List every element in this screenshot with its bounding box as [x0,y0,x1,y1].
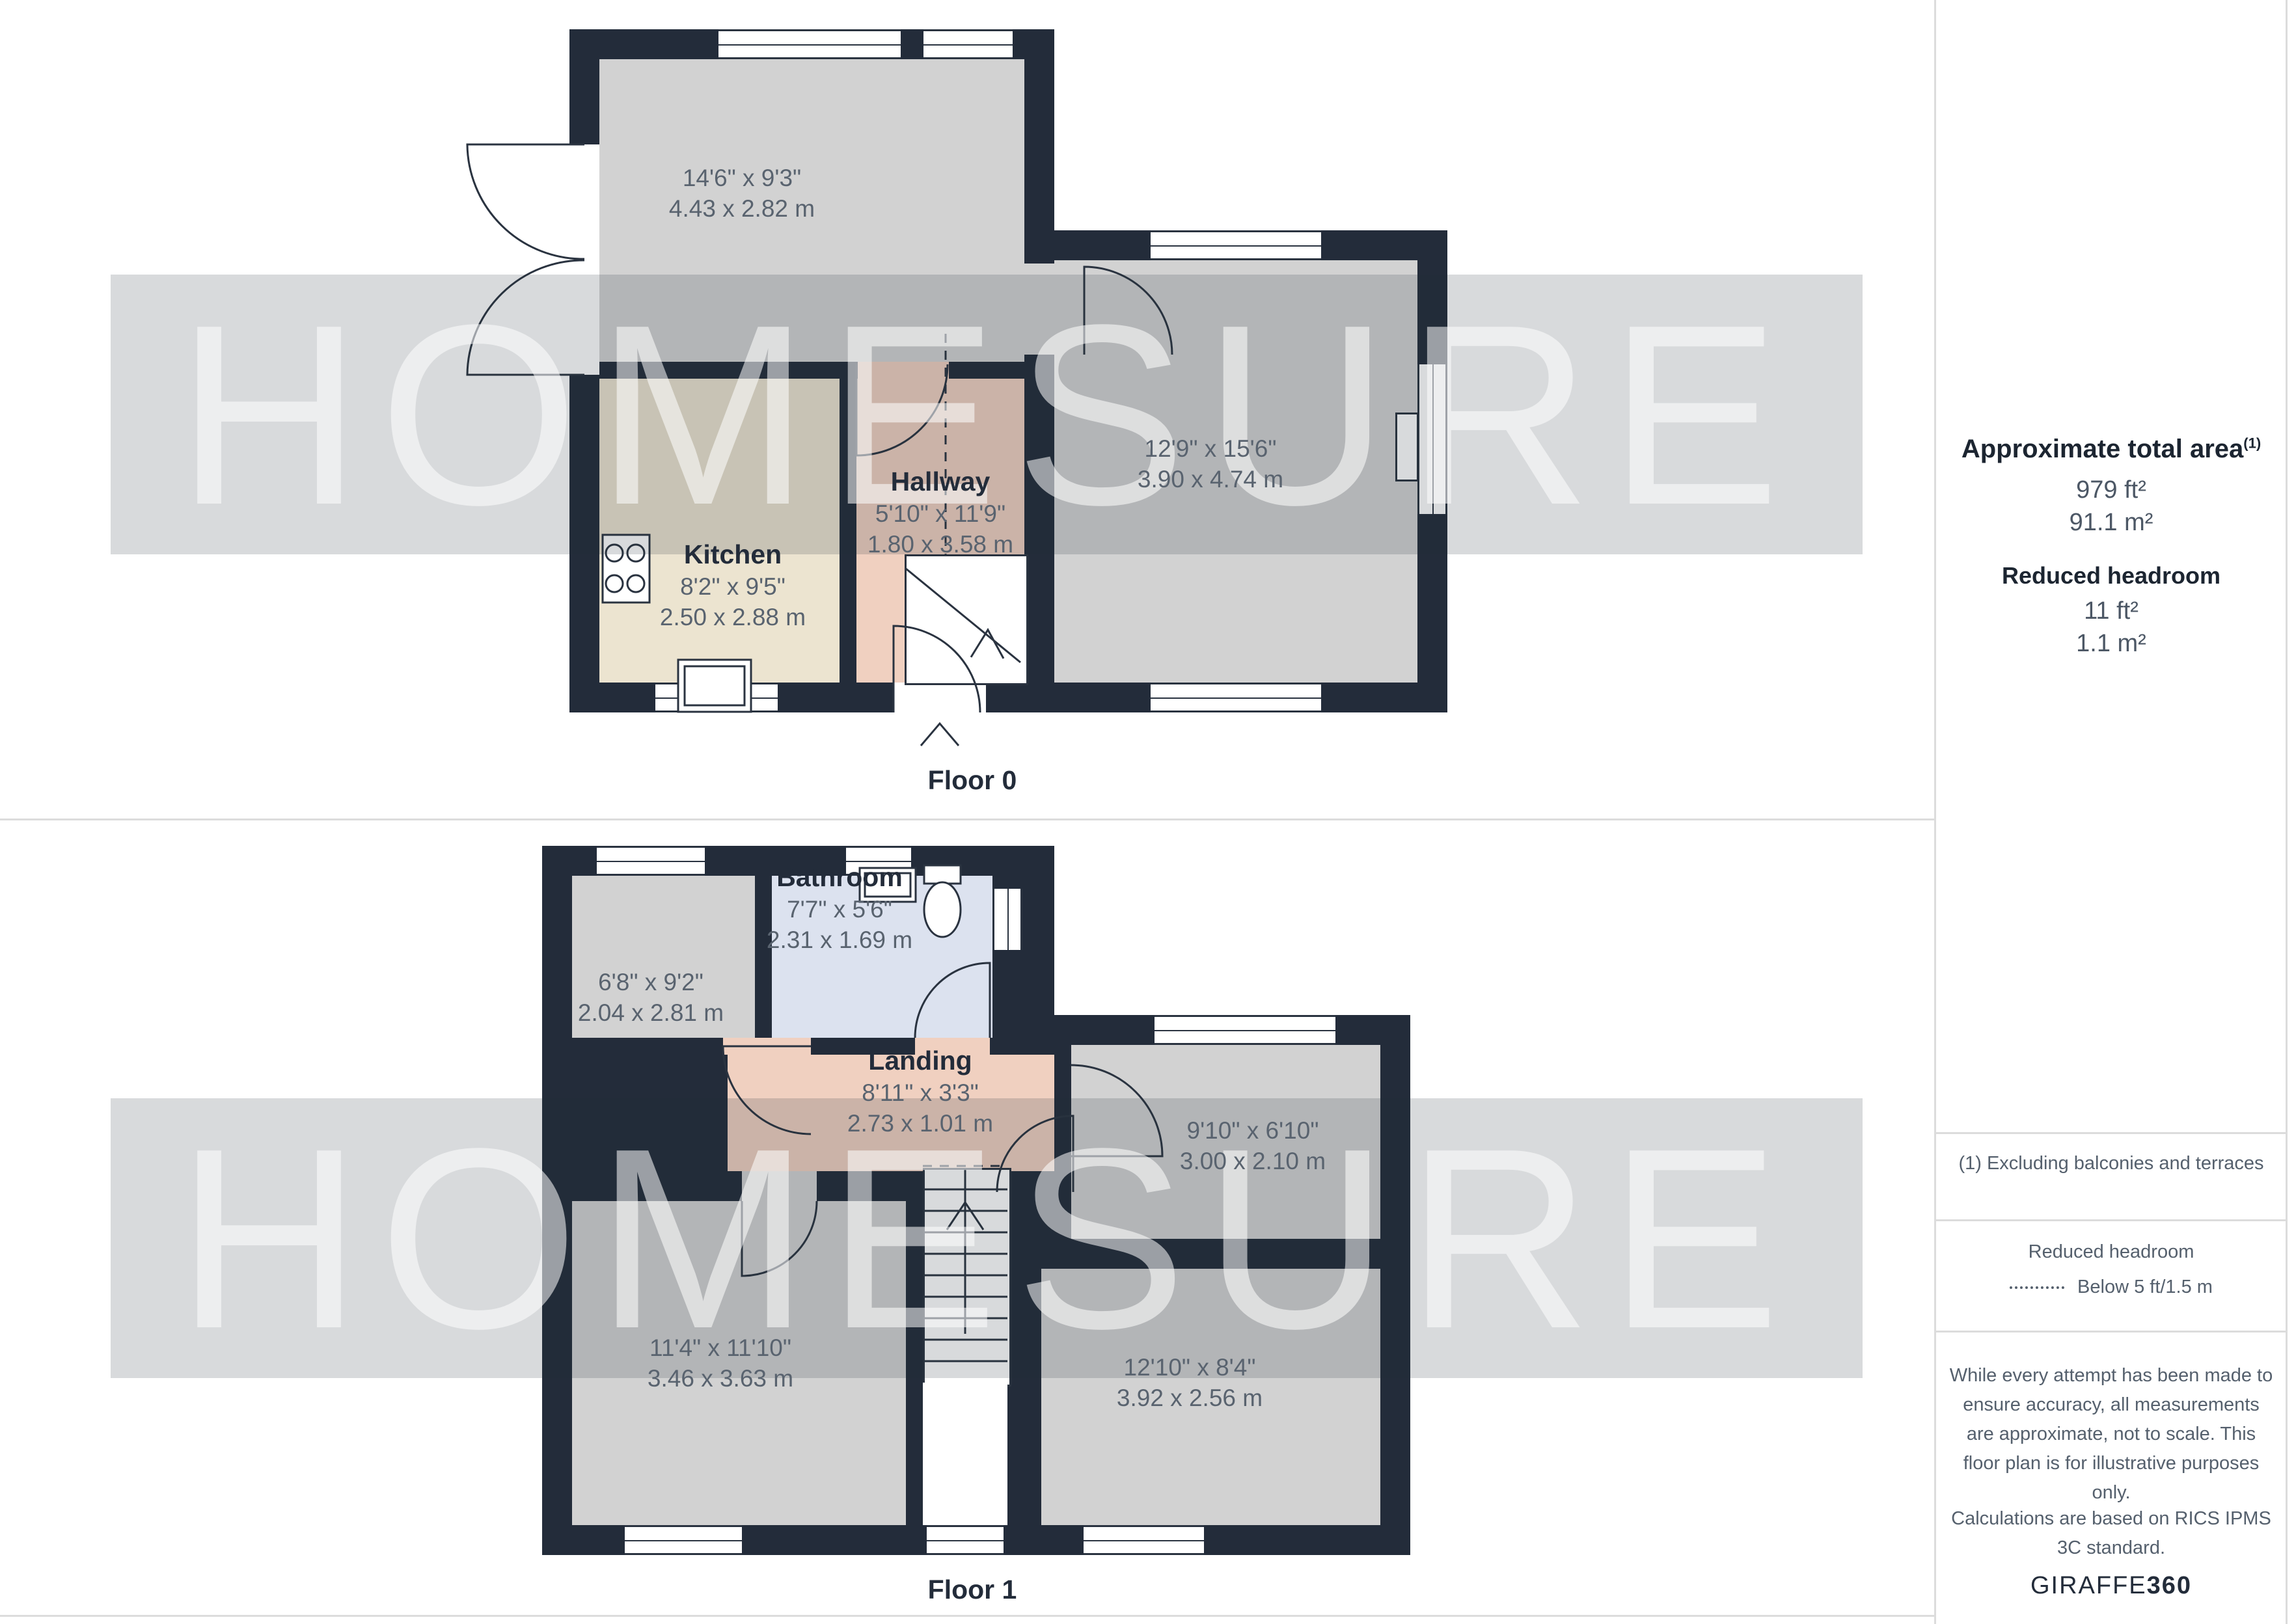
total-area-title: Approximate total area(1) [1935,435,2287,464]
bathroom-door-arc [915,963,990,1038]
bottom-divider-line [0,1615,1934,1617]
room-dim-metric: 1.80 x 3.58 m [868,529,1013,560]
watermark-text: HOMESURE [176,1110,1797,1367]
disclaimer-text-1: While every attempt has been made to ens… [1948,1361,2274,1508]
floor0-caption: Floor 0 [928,765,1017,796]
total-area-footnote-marker: (1) [2243,435,2261,452]
sidebar-divider-line [1934,0,1936,1624]
legend-title: Reduced headroom [1935,1241,2287,1263]
room-label-front-bedroom: 11'4" x 11'10" 3.46 x 3.63 m [648,1333,793,1394]
room-label-reception: 14'6" x 9'3" 4.43 x 2.82 m [669,163,815,224]
room-label-living: 12'9" x 15'6" 3.90 x 4.74 m [1138,433,1283,494]
floorplan-page: 14'6" x 9'3" 4.43 x 2.82 m Kitchen 8'2" … [0,0,2296,1624]
room-label-main-bedroom: 12'10" x 8'4" 3.92 x 2.56 m [1117,1352,1263,1413]
total-area-metric: 91.1 m² [1935,509,2287,537]
room-dim-imperial: 12'9" x 15'6" [1138,433,1283,464]
page-right-border [2286,0,2288,1624]
room-dim-metric: 2.31 x 1.69 m [767,925,912,955]
hob-burner-icon [606,575,623,592]
disclaimer-text-2: Calculations are based on RICS IPMS 3C s… [1948,1504,2274,1563]
room-dim-imperial: 7'7" x 5'6" [767,894,912,925]
hob-burner-icon [627,575,644,592]
room-name: Kitchen [660,537,806,571]
room-dim-imperial: 8'11" x 3'3" [847,1077,993,1108]
room-dim-metric: 4.43 x 2.82 m [669,193,815,224]
toilet-bowl-icon [924,882,961,937]
room-dim-metric: 3.90 x 4.74 m [1138,464,1283,494]
reduced-headroom-title: Reduced headroom [1935,562,2287,589]
dotted-line-icon [2010,1286,2064,1289]
floors-divider-line [0,819,1934,820]
french-door-upper-arc [467,144,584,259]
watermark-band-2: HOMESURE [111,1098,1863,1378]
room-label-kitchen: Kitchen 8'2" x 9'5" 2.50 x 2.88 m [660,537,806,632]
room-name: Landing [847,1044,993,1077]
sidebar-section-divider-1 [1935,1132,2288,1134]
room-dim-imperial: 12'10" x 8'4" [1117,1352,1263,1383]
room-label-hallway: Hallway 5'10" x 11'9" 1.80 x 3.58 m [868,465,1013,560]
sidebar-section-divider-3 [1935,1331,2288,1333]
room-dim-imperial: 14'6" x 9'3" [669,163,815,193]
room-label-small-bedroom: 6'8" x 9'2" 2.04 x 2.81 m [578,967,724,1028]
reduced-headroom-metric: 1.1 m² [1935,630,2287,658]
floor1-caption: Floor 1 [928,1575,1017,1605]
room-dim-imperial: 5'10" x 11'9" [868,498,1013,529]
reduced-headroom-imperial: 11 ft² [1935,597,2287,625]
legend-item-text: Below 5 ft/1.5 m [2077,1277,2213,1298]
room-dim-metric: 3.00 x 2.10 m [1180,1146,1326,1176]
brand-suffix: 360 [2147,1572,2192,1599]
room-dim-metric: 2.50 x 2.88 m [660,602,806,632]
room-label-landing: Landing 8'11" x 3'3" 2.73 x 1.01 m [847,1044,993,1139]
sink-unit-inner-icon [685,666,745,705]
room-dim-metric: 3.92 x 2.56 m [1117,1383,1263,1413]
brand-name: GIRAFFE [2030,1572,2147,1599]
room-dim-metric: 3.46 x 3.63 m [648,1363,793,1394]
room-dim-metric: 2.04 x 2.81 m [578,997,724,1028]
room-dim-imperial: 8'2" x 9'5" [660,571,806,602]
sidebar-section-divider-2 [1935,1219,2288,1221]
room-name: Hallway [868,465,1013,498]
stairs-diagonal [906,569,1020,662]
room-dim-imperial: 6'8" x 9'2" [578,967,724,997]
room-label-rear-bedroom: 9'10" x 6'10" 3.00 x 2.10 m [1180,1115,1326,1176]
room-name: Bathroom [767,860,912,894]
total-area-imperial: 979 ft² [1935,476,2287,504]
room-dim-imperial: 9'10" x 6'10" [1180,1115,1326,1146]
giraffe360-logo: GIRAFFE360 [1935,1572,2287,1600]
room-label-bathroom: Bathroom 7'7" x 5'6" 2.31 x 1.69 m [767,860,912,955]
total-area-title-text: Approximate total area [1961,435,2243,463]
toilet-cistern-icon [924,865,961,884]
legend-row: Below 5 ft/1.5 m [1935,1277,2287,1298]
front-door-arc [894,626,980,712]
room-dim-imperial: 11'4" x 11'10" [648,1333,793,1363]
entrance-arrow-icon [921,724,959,746]
area-footnote: (1) Excluding balconies and terraces [1935,1153,2287,1174]
room-dim-metric: 2.73 x 1.01 m [847,1108,993,1139]
